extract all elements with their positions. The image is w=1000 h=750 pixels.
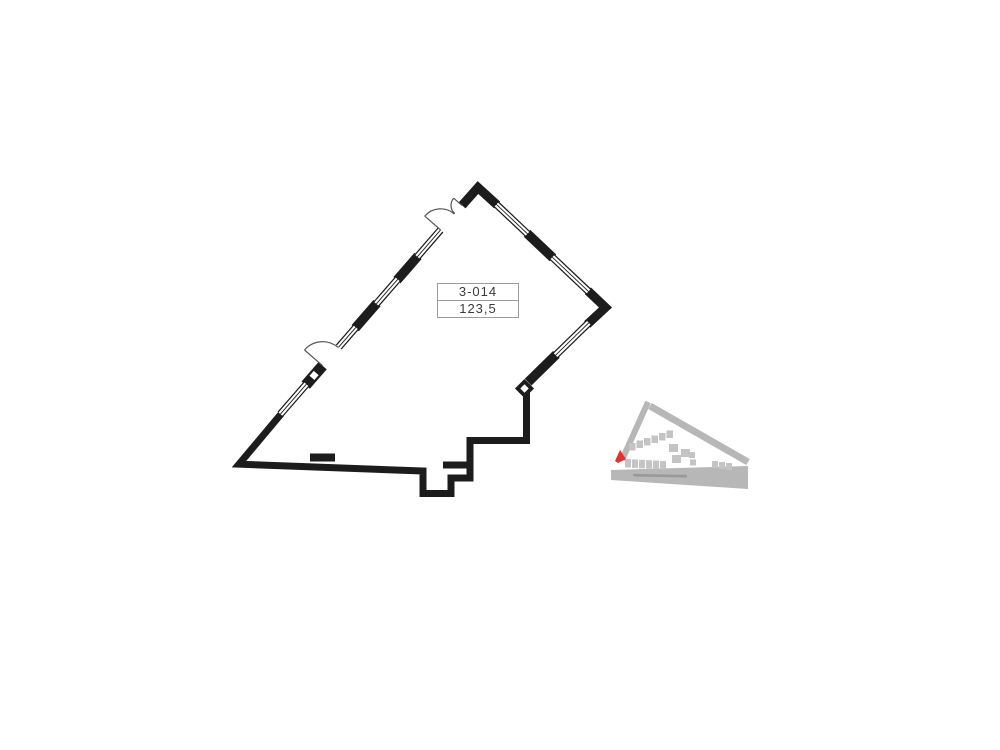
door-leaf	[305, 350, 323, 366]
building-block	[644, 438, 651, 446]
building-block	[659, 433, 666, 441]
building-block	[672, 455, 681, 463]
wall-pier	[527, 233, 553, 257]
minimap-buildings	[625, 431, 732, 471]
apex-corner	[462, 188, 497, 206]
wall-pier	[355, 303, 377, 328]
wall-pier	[397, 256, 418, 280]
unit-area: 123,5	[438, 301, 518, 317]
wall-pier	[528, 354, 556, 382]
wall-stub	[310, 454, 335, 462]
building-block	[726, 463, 732, 470]
building-block	[637, 441, 644, 449]
building-block	[681, 449, 690, 457]
road	[622, 402, 648, 460]
building-block	[669, 444, 678, 452]
floorplan-drawing	[0, 0, 1000, 750]
building-block	[689, 452, 695, 458]
building-block	[639, 460, 645, 469]
building-block	[660, 461, 666, 470]
building-block	[712, 461, 718, 468]
unit-label-box: 3-014 123,5	[437, 283, 519, 318]
building-block	[632, 459, 638, 468]
east-corner	[587, 291, 605, 325]
unit-number: 3-014	[438, 284, 518, 301]
building-block	[625, 459, 631, 468]
building-block	[652, 436, 659, 444]
building-block	[719, 462, 725, 469]
door-arc	[305, 342, 339, 350]
columns-and-stubs	[310, 371, 535, 469]
wall-stub	[443, 462, 470, 469]
building-block	[667, 431, 674, 439]
window-walls-glass	[280, 204, 588, 414]
door-swings	[305, 198, 463, 366]
door-arc	[425, 209, 455, 216]
floorplan-page: 3-014 123,5	[0, 0, 1000, 750]
site-minimap	[611, 402, 748, 489]
building-block	[646, 460, 652, 469]
door-leaf	[425, 216, 441, 230]
building-block	[629, 443, 636, 451]
building-block	[690, 460, 696, 466]
building-block	[653, 461, 659, 470]
